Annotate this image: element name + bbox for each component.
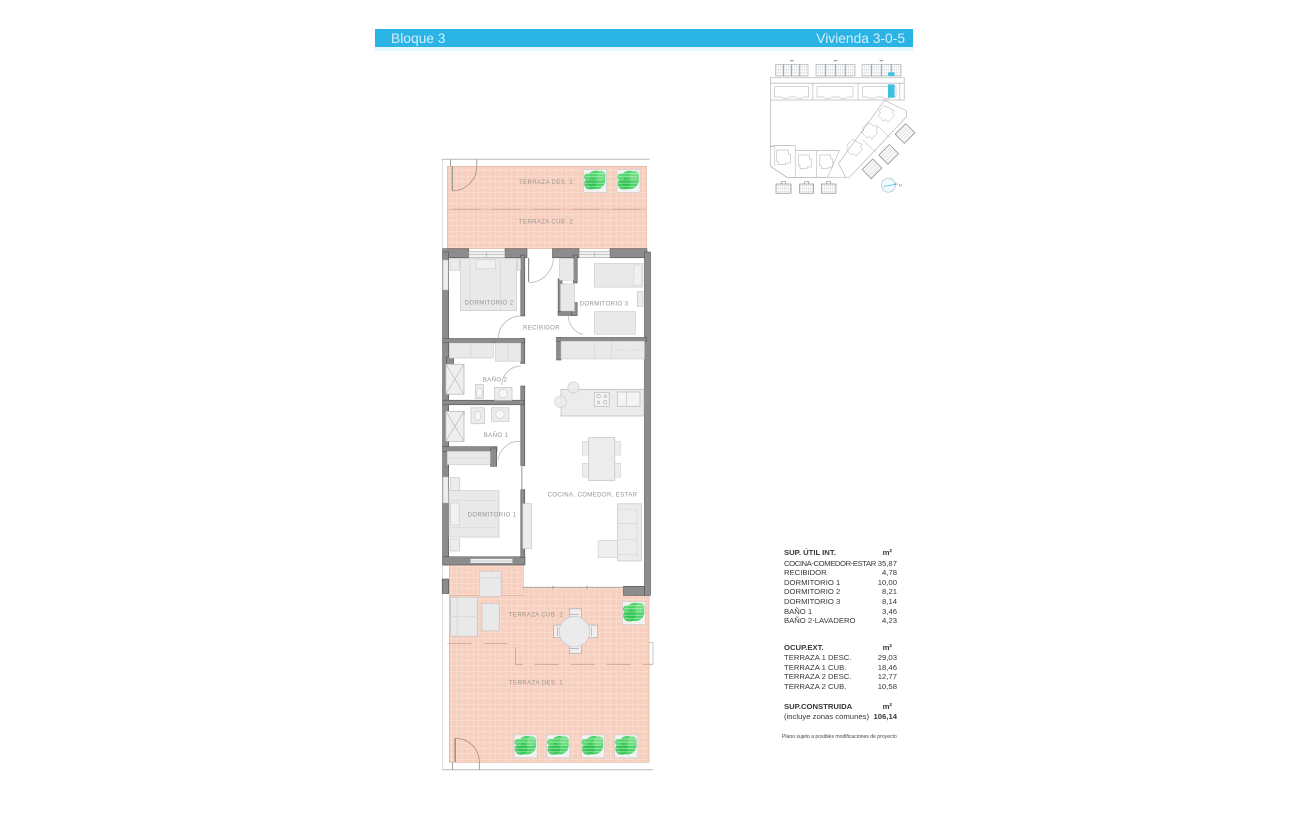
svg-text:TERRAZA CUB. 1: TERRAZA CUB. 1 [509, 612, 564, 619]
svg-text:COCINA, COMEDOR, ESTAR: COCINA, COMEDOR, ESTAR [548, 492, 638, 499]
svg-text:N: N [899, 182, 902, 187]
svg-text:TERRAZA DES. 1: TERRAZA DES. 1 [509, 680, 563, 687]
svg-text:DORMITORIO 1: DORMITORIO 1 [468, 512, 517, 519]
svg-text:TERRAZA CUB. 2: TERRAZA CUB. 2 [519, 219, 574, 226]
svg-text:RECIBIDOR: RECIBIDOR [523, 325, 560, 332]
svg-text:BAÑO 1: BAÑO 1 [484, 432, 509, 439]
svg-text:DORMITORIO 2: DORMITORIO 2 [465, 300, 514, 307]
svg-text:BAÑO 2: BAÑO 2 [483, 377, 508, 384]
svg-text:TERRAZA DES. 2: TERRAZA DES. 2 [519, 179, 573, 186]
svg-text:DORMITORIO 3: DORMITORIO 3 [580, 301, 629, 308]
